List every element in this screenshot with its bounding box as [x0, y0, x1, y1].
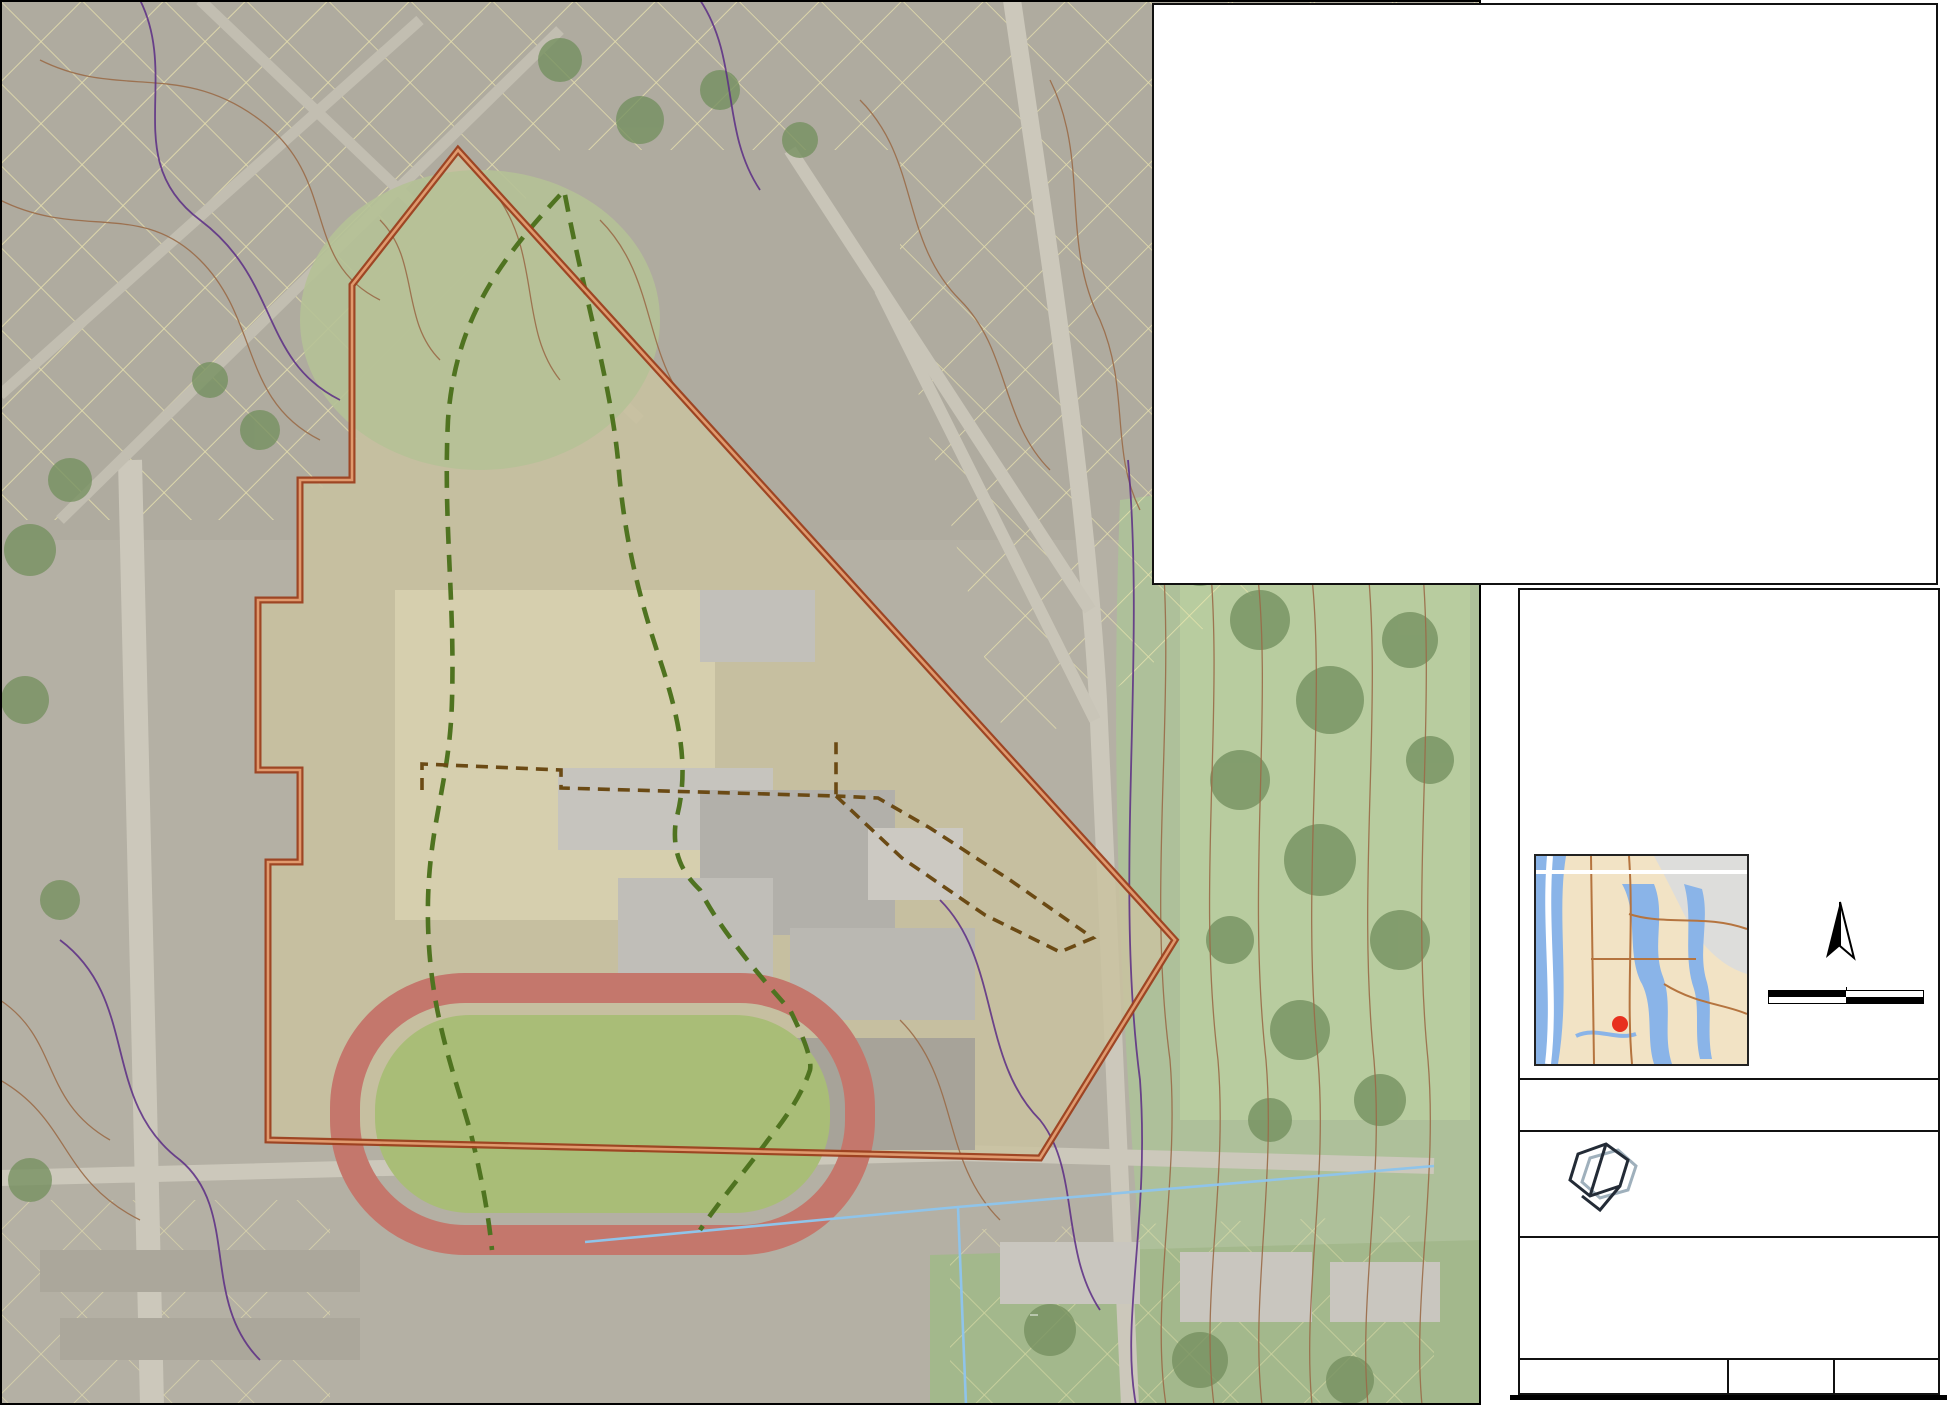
- project-info-row: [1520, 1358, 1938, 1397]
- legend-left-column: [1168, 29, 1550, 579]
- figure-sheet: [0, 0, 1947, 1405]
- sheet-bottom-rule: [1510, 1395, 1947, 1400]
- title-block: [1520, 1240, 1938, 1244]
- imagery-credit: [1030, 1314, 1038, 1316]
- north-arrow-icon: [1820, 900, 1860, 964]
- legend-right-column: [1570, 29, 1936, 579]
- legend-box: [1152, 3, 1938, 585]
- scale-bar-graphic: [1768, 990, 1924, 1004]
- scale-bar: [1768, 988, 1924, 1006]
- aesi-logo-icon: [1566, 1140, 1652, 1232]
- info-panel: [1518, 588, 1940, 1395]
- aesi-logo: [1520, 1132, 1938, 1238]
- vicinity-inset-map: [1534, 854, 1749, 1066]
